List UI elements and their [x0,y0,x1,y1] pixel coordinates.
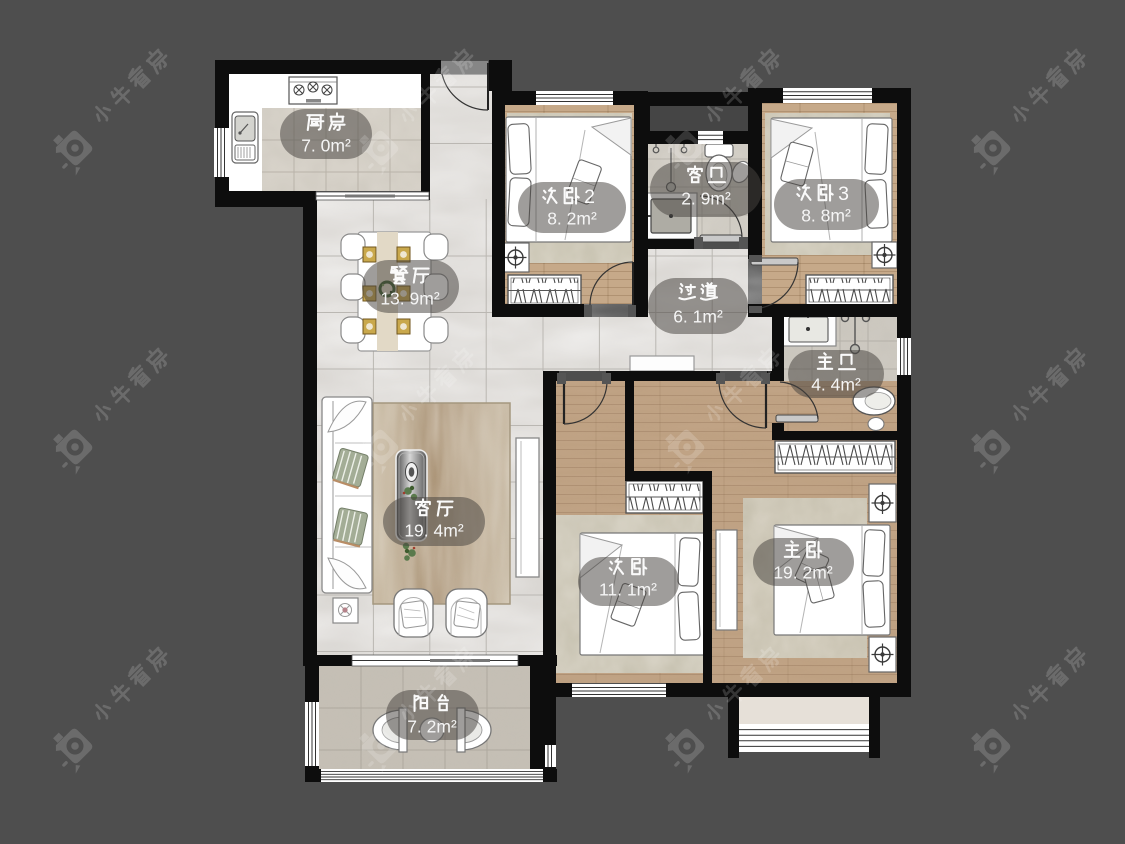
svg-text:13. 9m²: 13. 9m² [380,289,439,309]
svg-text:19. 2m²: 19. 2m² [773,563,832,583]
svg-text:7. 0m²: 7. 0m² [301,136,351,156]
svg-text:2. 9m²: 2. 9m² [681,189,731,209]
svg-text:8. 8m²: 8. 8m² [801,206,851,226]
svg-text:3: 3 [838,183,849,205]
svg-text:11. 1m²: 11. 1m² [599,580,657,600]
svg-text:19. 4m²: 19. 4m² [404,521,463,541]
svg-text:8. 2m²: 8. 2m² [547,209,597,229]
svg-text:6. 1m²: 6. 1m² [673,307,723,327]
svg-text:4. 4m²: 4. 4m² [811,375,861,395]
svg-text:2: 2 [584,186,595,208]
svg-text:7. 2m²: 7. 2m² [407,717,457,737]
